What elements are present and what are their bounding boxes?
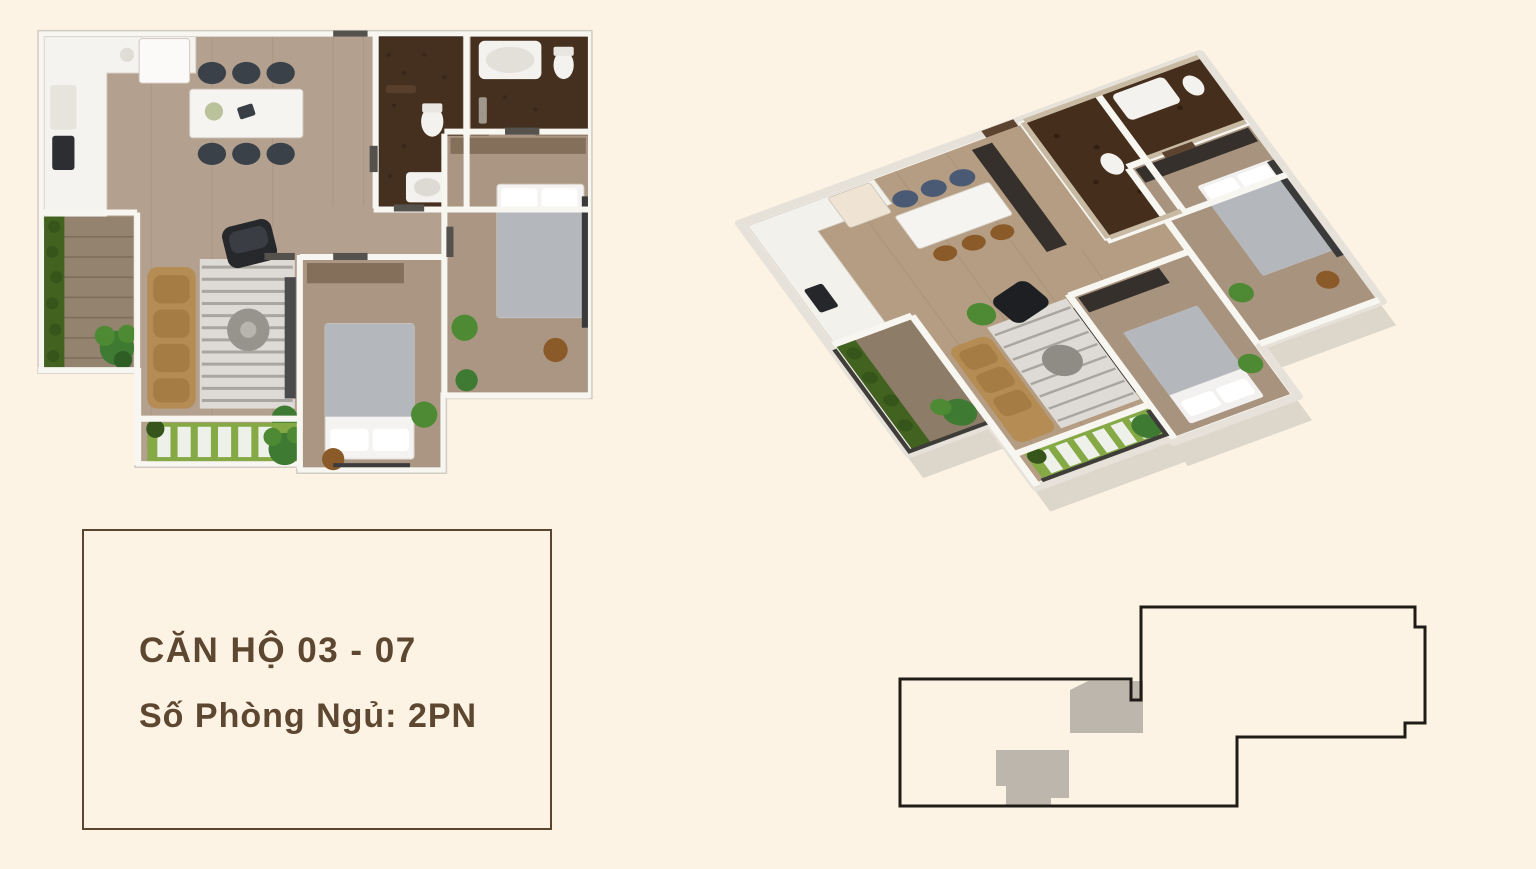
desk-chair — [543, 338, 567, 362]
bathroom-2 — [471, 37, 588, 130]
dining-set — [190, 62, 303, 165]
floorplan-2d-figure — [30, 24, 598, 494]
unit-info-card: CĂN HỘ 03 - 07 Số Phòng Ngủ: 2PN — [82, 529, 552, 830]
hedge — [44, 217, 64, 369]
left-balcony — [44, 217, 136, 370]
stove — [52, 136, 74, 170]
floorplan-3d-figure — [698, 12, 1472, 604]
bedroom-1 — [303, 259, 440, 470]
page-background: CĂN HỘ 03 - 07 Số Phòng Ngủ: 2PN — [0, 0, 1536, 869]
bed — [325, 324, 414, 459]
bed — [497, 184, 584, 317]
keyplan-figure — [893, 598, 1437, 818]
floorplan-3d-apartment — [738, 51, 1419, 521]
window-strip — [582, 196, 588, 327]
fridge — [139, 39, 190, 83]
unit-markers — [996, 681, 1143, 807]
unit-marker-lower — [996, 750, 1069, 807]
bottom-balcony — [146, 420, 303, 465]
wardrobe — [450, 138, 585, 154]
unit-title: CĂN HỘ 03 - 07 — [139, 631, 417, 671]
building-outline — [900, 607, 1425, 806]
unit-bedrooms: Số Phòng Ngủ: 2PN — [139, 697, 477, 736]
tv-console — [285, 277, 296, 398]
wardrobe — [307, 263, 404, 283]
